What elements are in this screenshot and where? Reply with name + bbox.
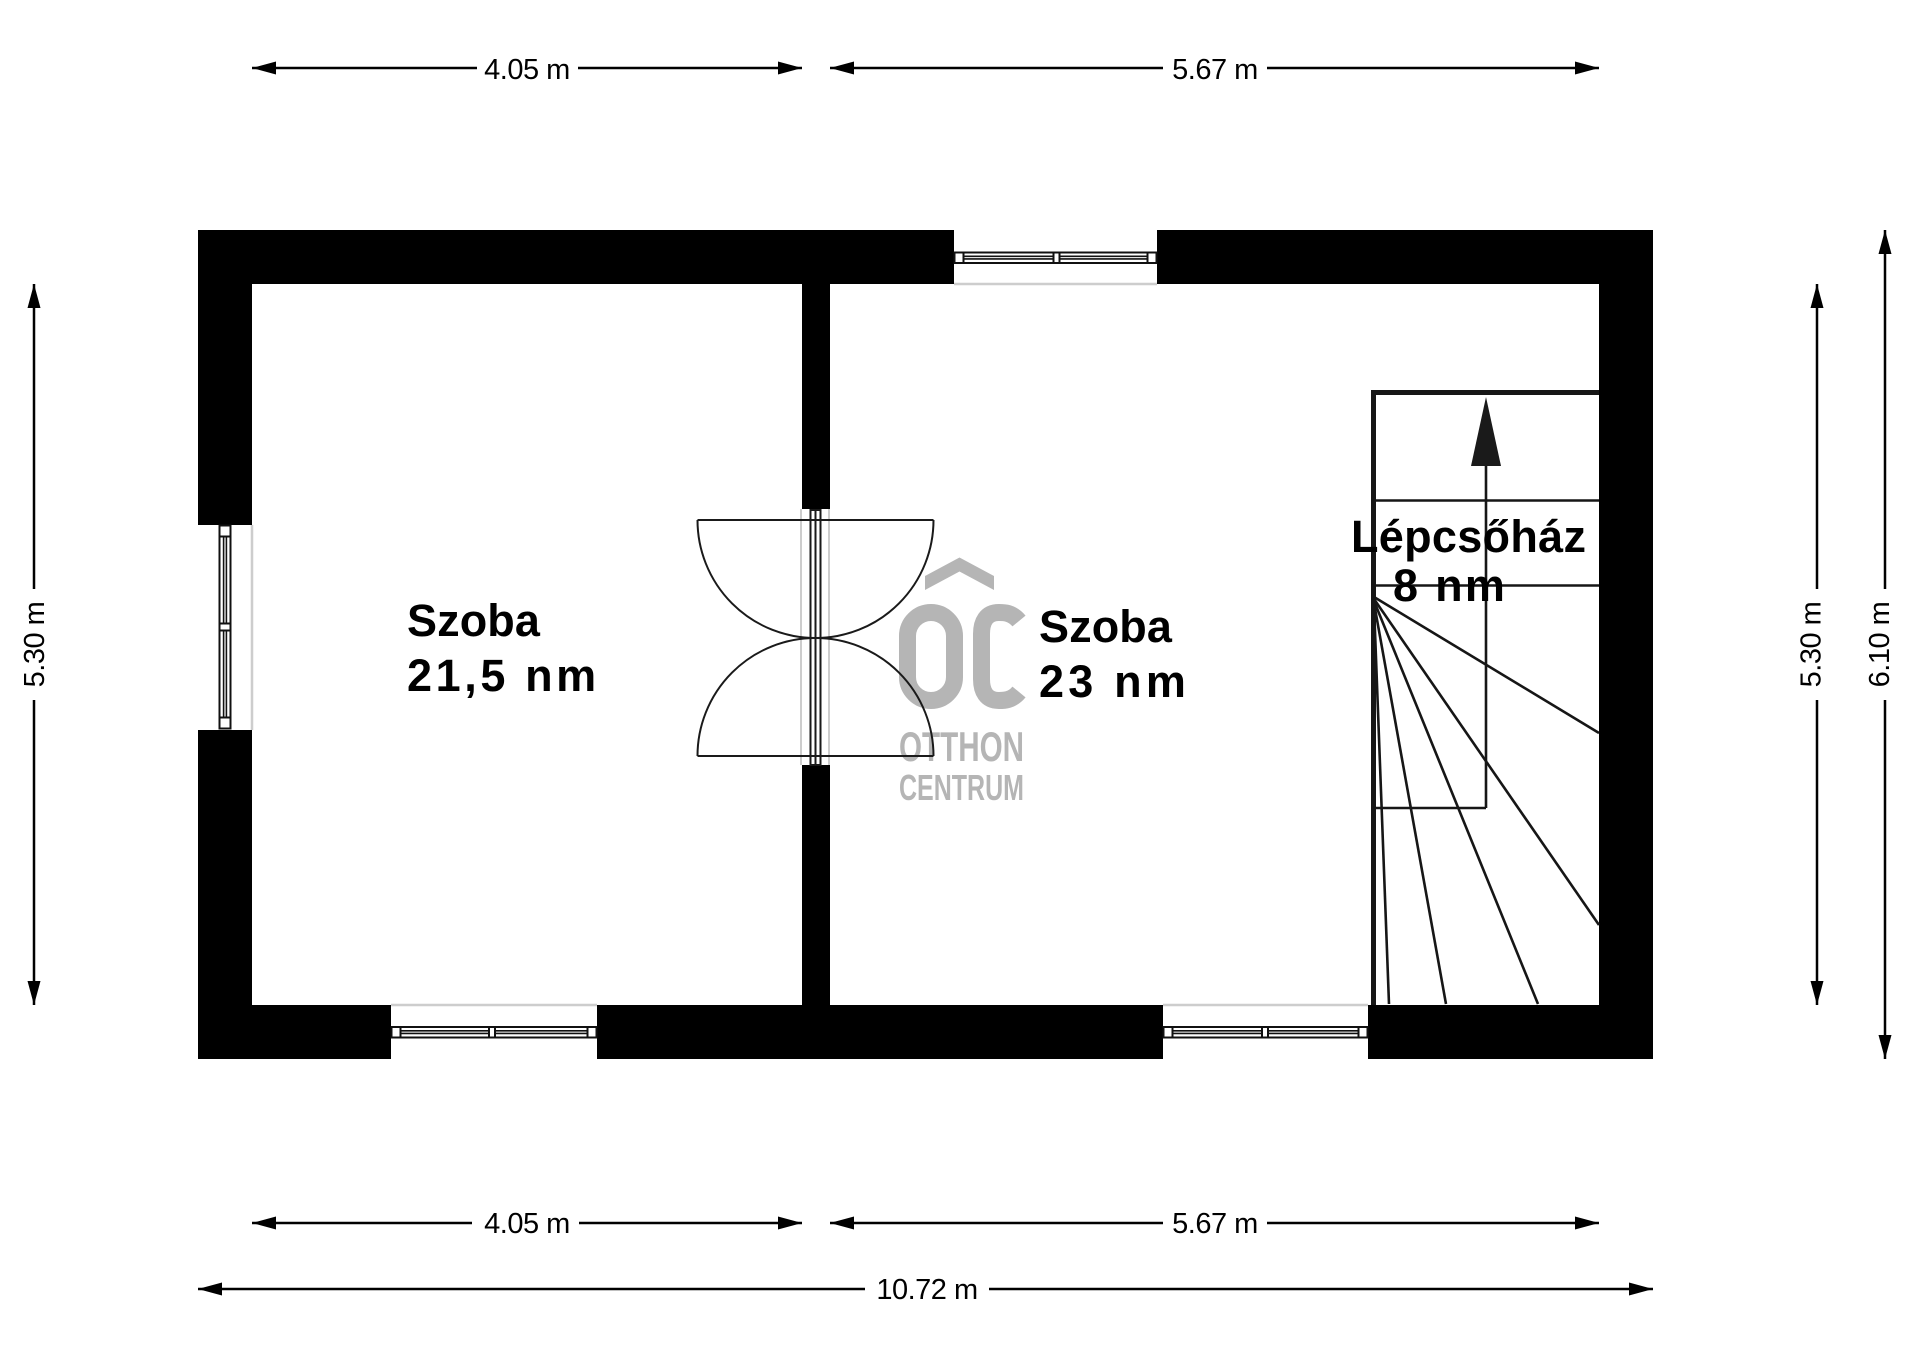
svg-text:10.72 m: 10.72 m (876, 1274, 977, 1306)
svg-text:5.67 m: 5.67 m (1172, 54, 1258, 86)
svg-text:5.30 m: 5.30 m (19, 602, 51, 688)
svg-text:8 nm: 8 nm (1393, 560, 1507, 611)
svg-text:23 nm: 23 nm (1039, 656, 1190, 707)
svg-text:CENTRUM: CENTRUM (899, 767, 1024, 808)
svg-text:21,5 nm: 21,5 nm (407, 650, 600, 701)
svg-text:Szoba: Szoba (1039, 601, 1173, 652)
svg-text:OTTHON: OTTHON (899, 723, 1024, 770)
svg-text:5.30 m: 5.30 m (1796, 602, 1828, 688)
svg-text:Lépcsőház: Lépcsőház (1351, 511, 1586, 562)
svg-text:4.05 m: 4.05 m (484, 1208, 570, 1240)
svg-text:5.67 m: 5.67 m (1172, 1208, 1258, 1240)
svg-text:Szoba: Szoba (407, 595, 541, 646)
svg-text:6.10 m: 6.10 m (1864, 602, 1896, 688)
svg-text:4.05 m: 4.05 m (484, 54, 570, 86)
